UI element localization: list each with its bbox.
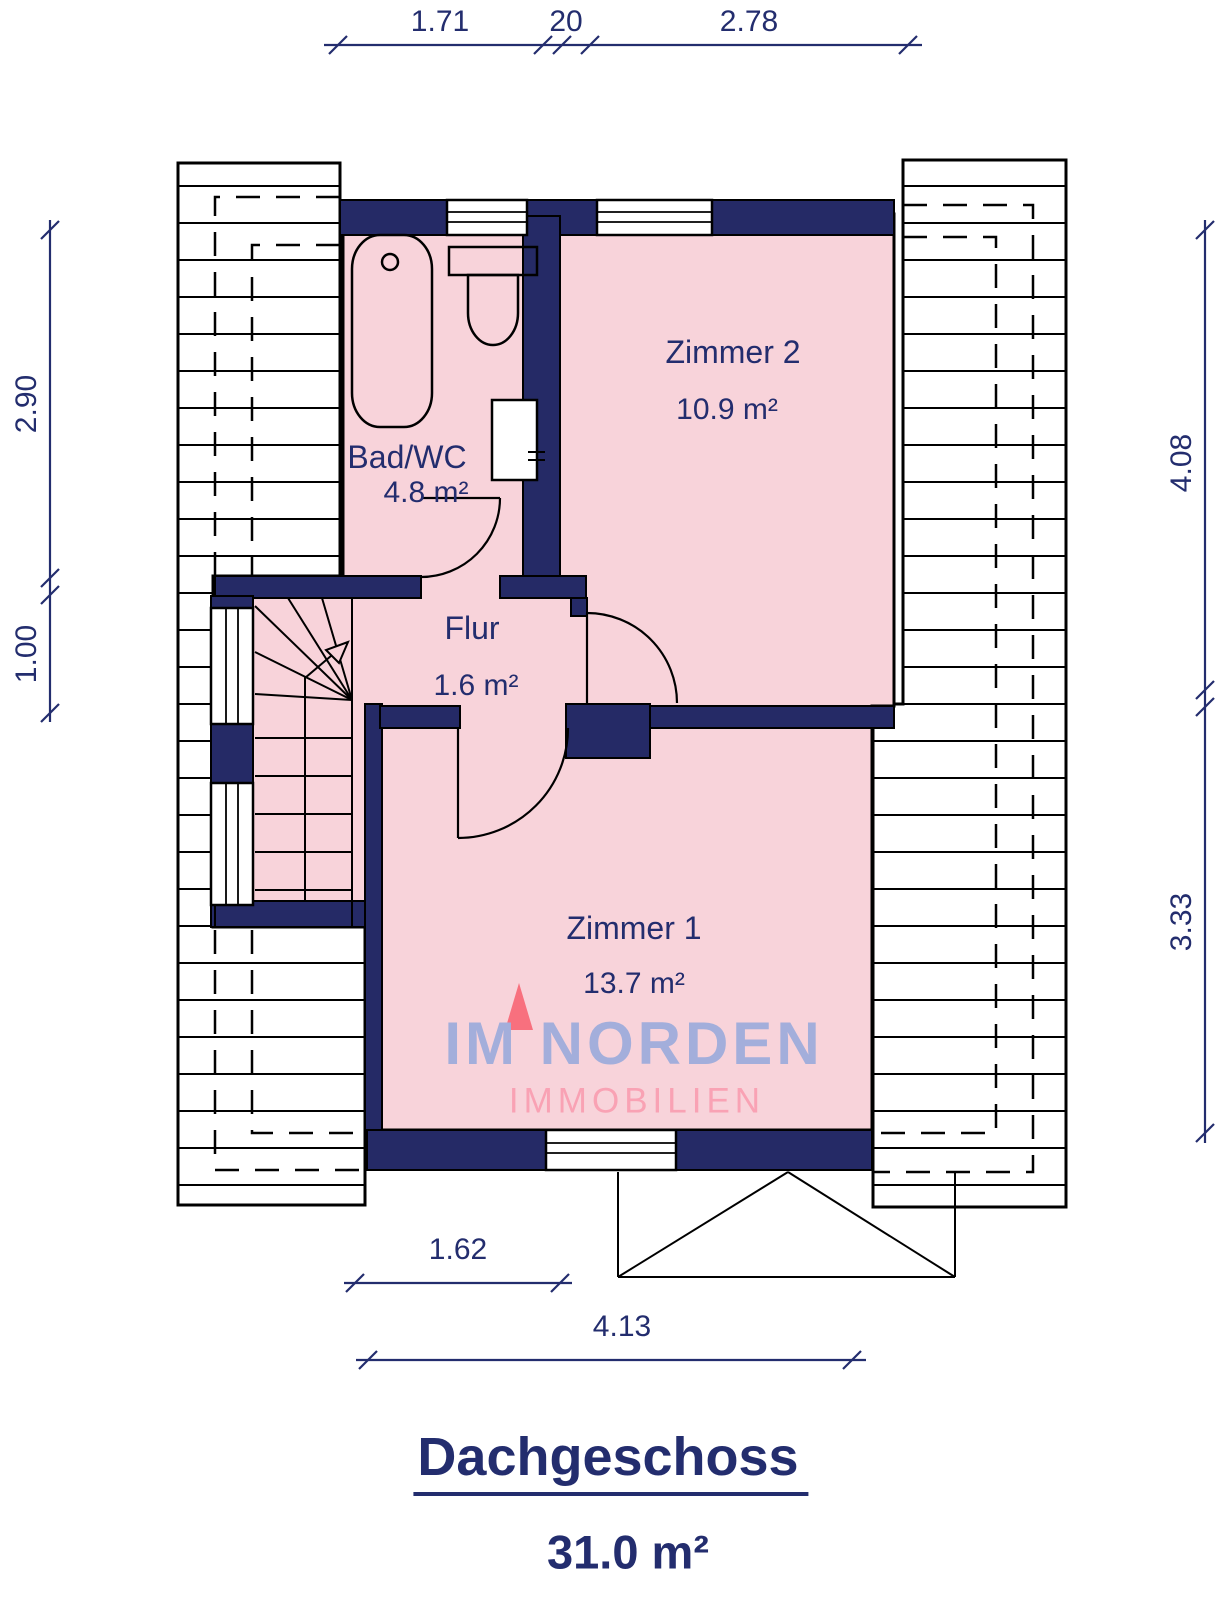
- dim-left-2: 1.00: [12, 625, 42, 683]
- dim-top-1: 1.71: [411, 7, 469, 37]
- watermark-subtitle: IMMOBILIEN: [509, 1084, 765, 1119]
- dim-top-2: 20: [549, 7, 582, 37]
- window-stair-lower: [211, 783, 253, 905]
- room-area-zimmer2: 10.9 m²: [676, 395, 778, 425]
- window-stair-upper: [211, 608, 253, 724]
- wall-left-pier-mid: [211, 721, 253, 785]
- wall-stair-top: [215, 576, 421, 598]
- room-area-bad: 4.8 m²: [383, 478, 468, 508]
- wall-zimmer1-zimmer2: [650, 706, 894, 728]
- window-zimmer1: [546, 1130, 676, 1170]
- page-title: Dachgeschoss: [413, 1430, 808, 1496]
- floorplan-drawing: [0, 0, 1217, 1603]
- shaft: [492, 400, 545, 480]
- total-area: 31.0 m²: [547, 1529, 709, 1576]
- dim-bottom-1: 1.62: [429, 1235, 487, 1265]
- watermark-brand: IM NORDEN: [444, 1014, 823, 1074]
- roof-hatch-right: [873, 160, 1066, 1207]
- dim-left-1: 2.90: [12, 375, 42, 433]
- dim-right-2: 3.33: [1167, 893, 1197, 951]
- wall-door-block: [566, 704, 650, 758]
- wall-bad-zimmer2: [523, 216, 560, 580]
- wall-stub-zimmer2-door: [571, 598, 587, 616]
- room-area-flur: 1.6 m²: [433, 671, 518, 701]
- dim-right-1: 4.08: [1167, 434, 1197, 492]
- wall-jamb-bad: [500, 576, 586, 598]
- wall-zimmer1-left: [365, 704, 382, 1130]
- wall-flur-zimmer1: [380, 706, 460, 728]
- room-label-zimmer2: Zimmer 2: [665, 336, 800, 368]
- room-label-bad: Bad/WC: [347, 441, 466, 473]
- dim-bottom-2: 4.13: [593, 1312, 651, 1342]
- dim-top-3: 2.78: [720, 7, 778, 37]
- floorplan-page: 1.71 20 2.78 2.90 1.00 4.08 3.33 1.62 4.…: [0, 0, 1217, 1603]
- room-area-zimmer1: 13.7 m²: [583, 969, 685, 999]
- window-zimmer2: [597, 200, 712, 235]
- room-label-zimmer1: Zimmer 1: [566, 912, 701, 944]
- room-label-flur: Flur: [444, 612, 499, 644]
- window-bad: [447, 200, 527, 235]
